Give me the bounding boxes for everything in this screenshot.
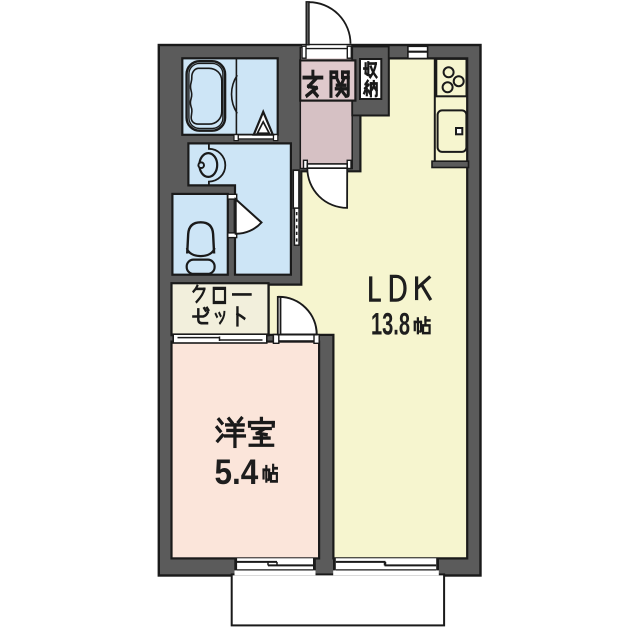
svg-text:13.8: 13.8 <box>371 306 410 342</box>
svg-text:5.4: 5.4 <box>215 452 259 492</box>
